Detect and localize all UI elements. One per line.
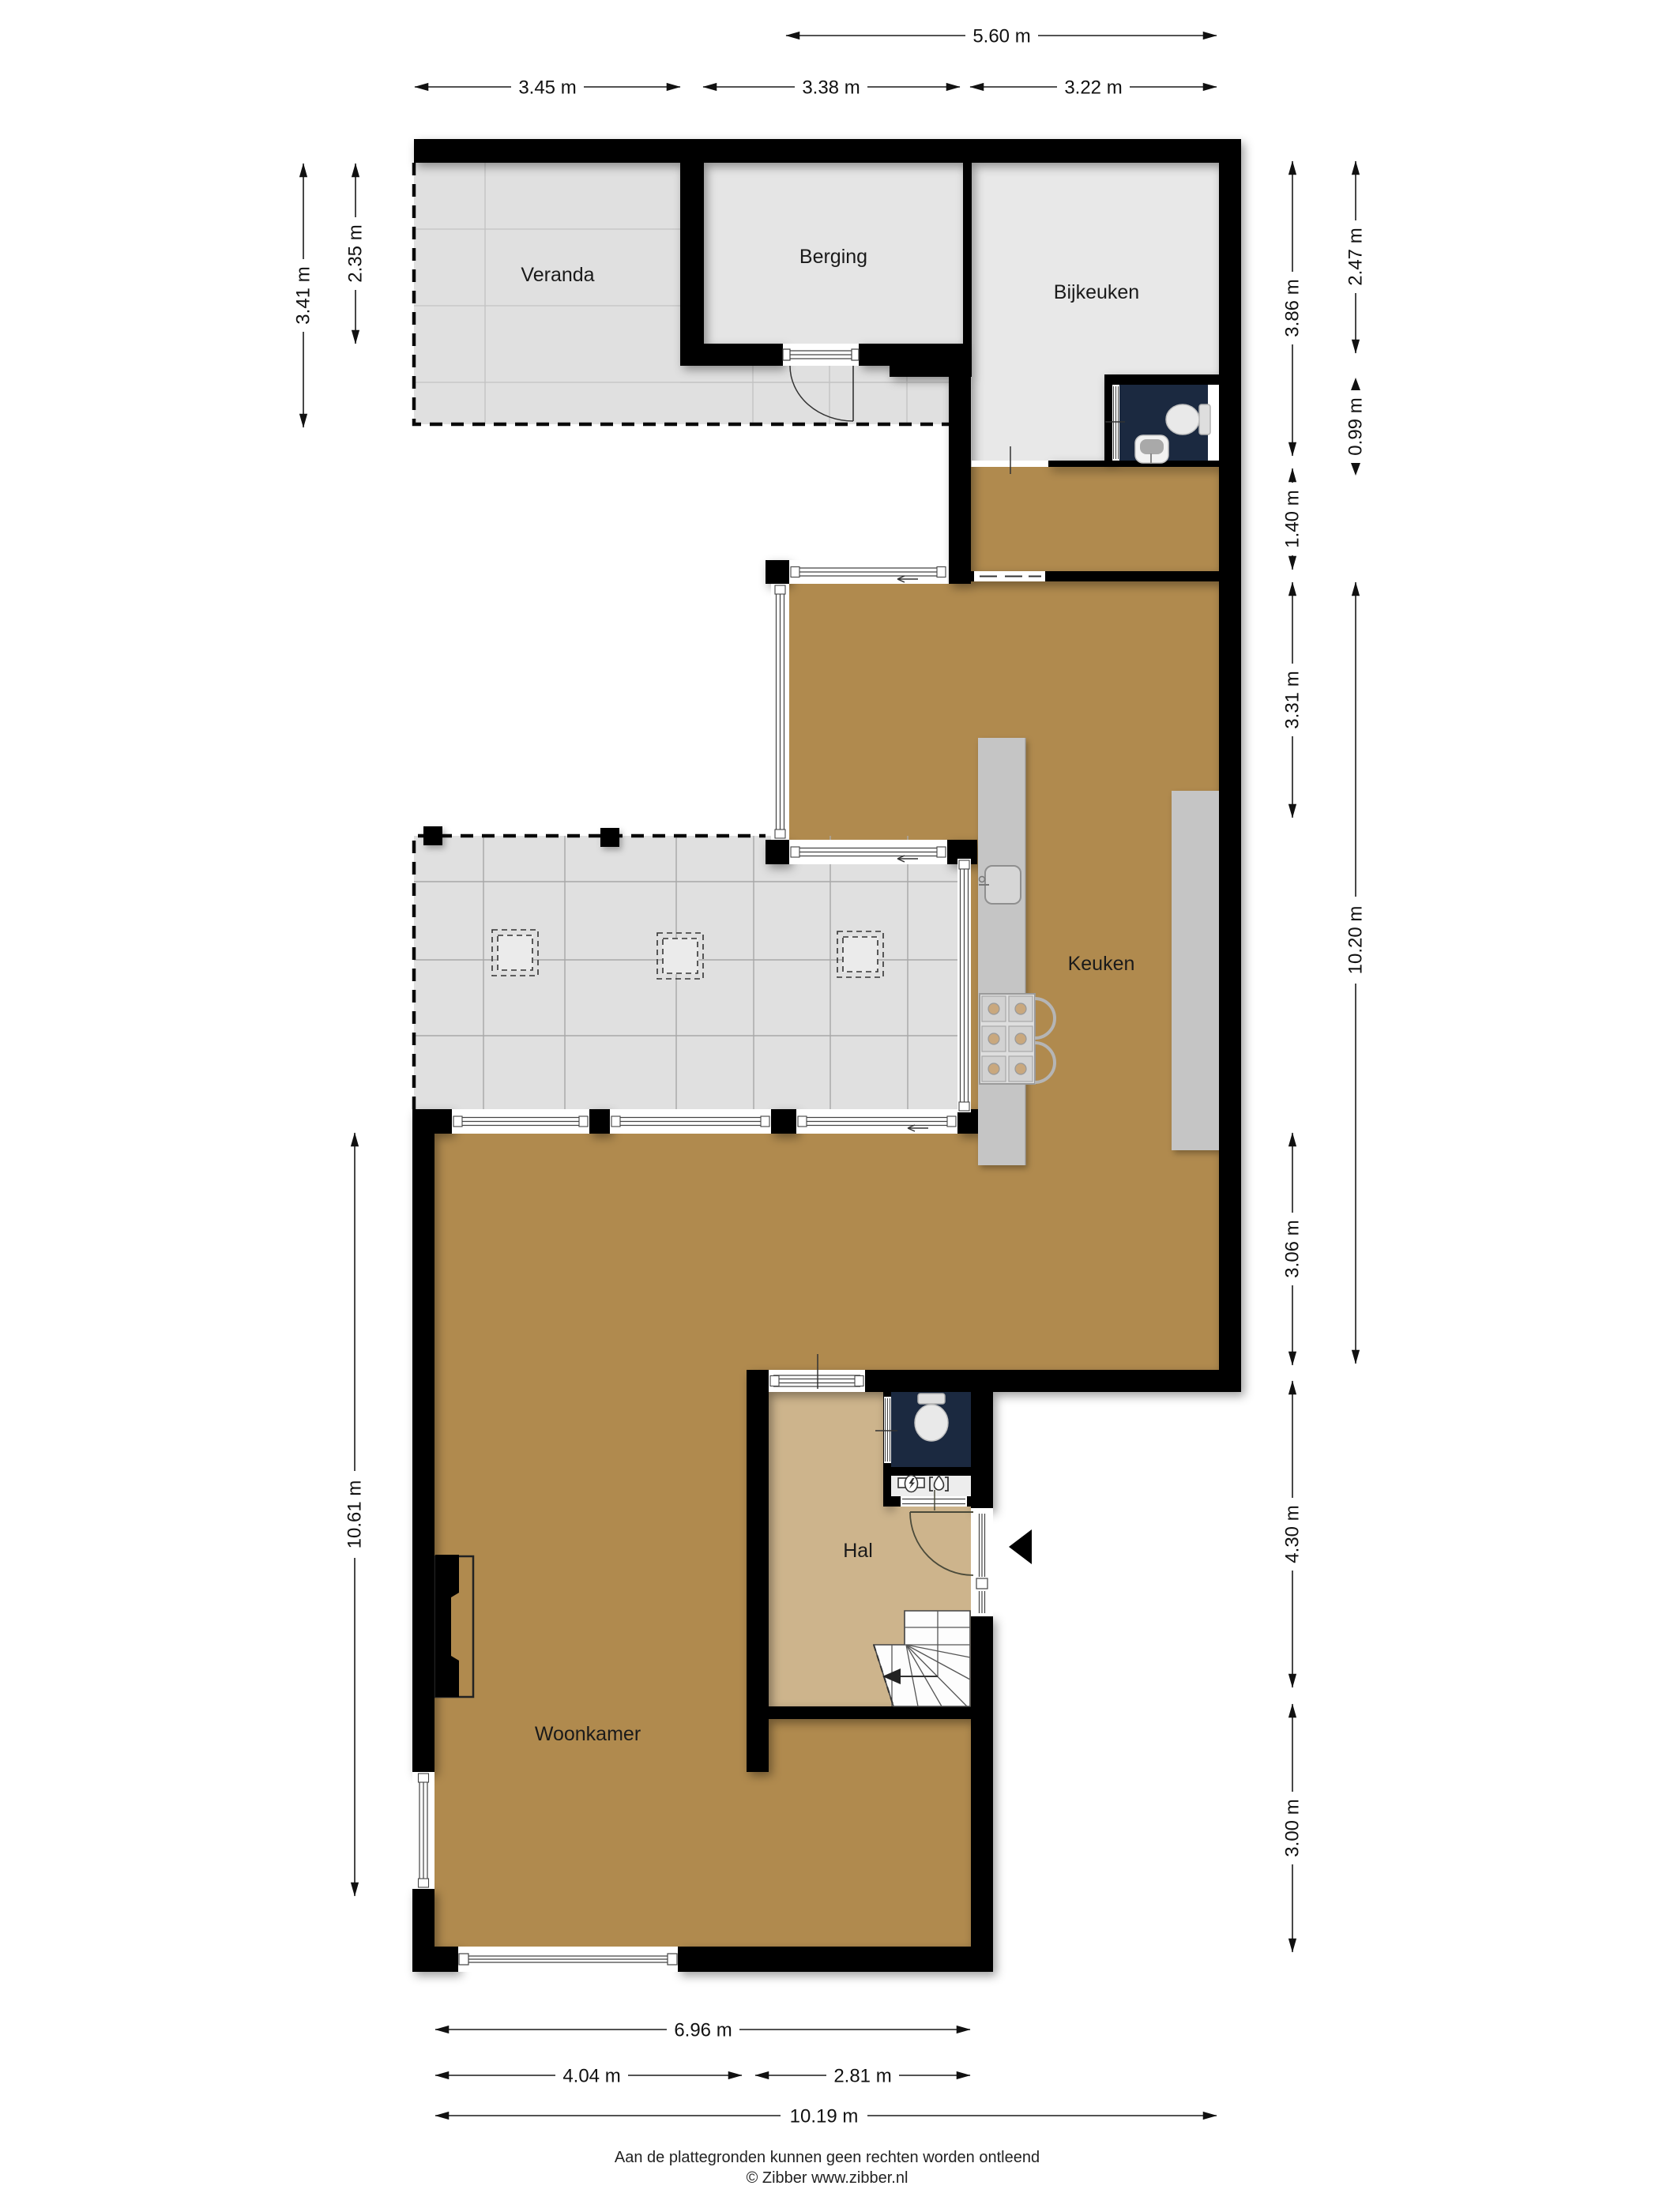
svg-text:Veranda: Veranda — [521, 264, 594, 286]
svg-text:3.22 m: 3.22 m — [1064, 77, 1122, 99]
svg-text:Hal: Hal — [843, 1540, 873, 1562]
svg-text:3.41 m: 3.41 m — [293, 266, 314, 324]
svg-text:Bijkeuken: Bijkeuken — [1054, 281, 1139, 303]
svg-text:3.06 m: 3.06 m — [1282, 1220, 1303, 1277]
svg-text:3.45 m: 3.45 m — [518, 77, 576, 99]
svg-text:10.61 m: 10.61 m — [344, 1480, 366, 1549]
svg-text:0.99 m: 0.99 m — [1345, 397, 1367, 455]
svg-text:Aan de plattegronden kunnen ge: Aan de plattegronden kunnen geen rechten… — [615, 2149, 1040, 2166]
svg-text:© Zibber www.zibber.nl: © Zibber www.zibber.nl — [747, 2169, 908, 2187]
svg-text:2.35 m: 2.35 m — [345, 224, 367, 282]
svg-text:Woonkamer: Woonkamer — [535, 1723, 641, 1745]
svg-text:2.81 m: 2.81 m — [833, 2066, 891, 2087]
svg-text:4.30 m: 4.30 m — [1282, 1505, 1303, 1563]
svg-text:2.47 m: 2.47 m — [1345, 228, 1367, 285]
svg-text:Keuken: Keuken — [1068, 953, 1135, 975]
svg-text:Berging: Berging — [799, 246, 867, 268]
svg-text:4.04 m: 4.04 m — [562, 2066, 620, 2087]
svg-text:5.60 m: 5.60 m — [972, 26, 1030, 47]
svg-text:3.86 m: 3.86 m — [1282, 279, 1303, 337]
svg-text:3.31 m: 3.31 m — [1282, 671, 1303, 728]
svg-text:10.19 m: 10.19 m — [790, 2106, 859, 2127]
svg-text:3.38 m: 3.38 m — [802, 77, 860, 99]
svg-text:1.40 m: 1.40 m — [1282, 490, 1303, 547]
svg-text:10.20 m: 10.20 m — [1345, 906, 1367, 975]
svg-text:3.00 m: 3.00 m — [1282, 1799, 1303, 1856]
svg-text:6.96 m: 6.96 m — [674, 2020, 732, 2041]
